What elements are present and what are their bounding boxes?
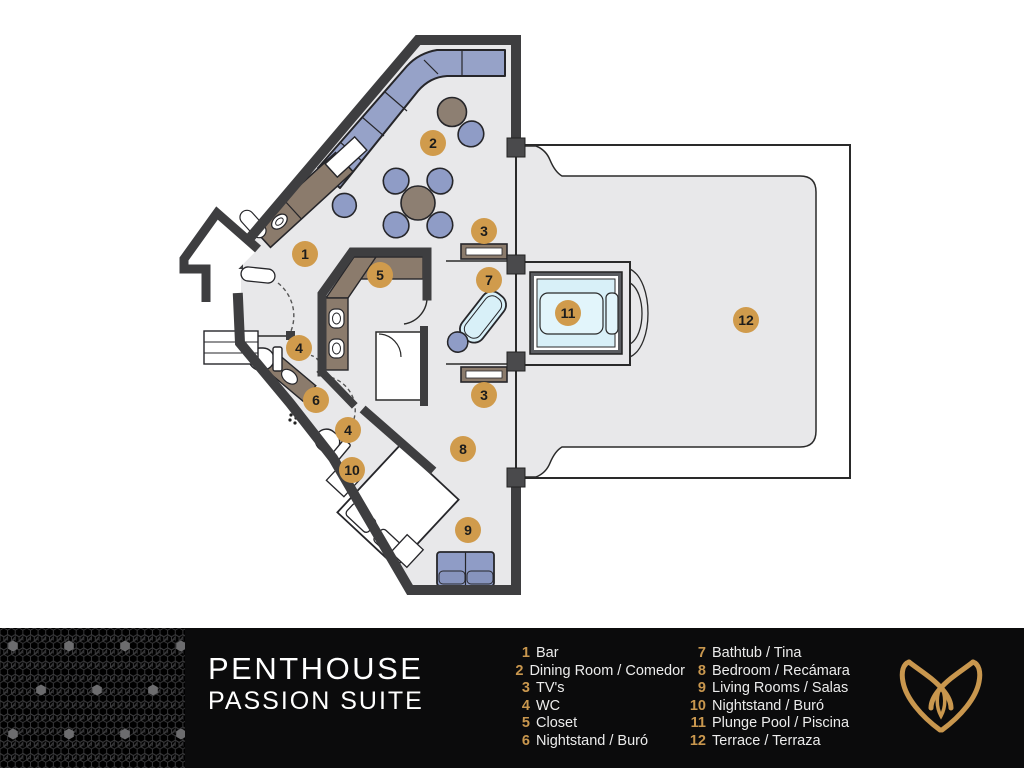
svg-text:3: 3 <box>480 223 488 239</box>
brand-logo <box>893 648 989 750</box>
svg-text:9: 9 <box>464 522 472 538</box>
svg-text:6: 6 <box>312 392 320 408</box>
tv-console-bottom <box>461 367 507 382</box>
legend-item-label: WC <box>536 698 560 716</box>
legend-item-number: 8 <box>681 663 706 681</box>
tv-console-top <box>461 244 507 259</box>
legend-item: 7Bathtub / Tina <box>681 645 871 663</box>
svg-text:4: 4 <box>295 340 303 356</box>
suite-title-block: PENTHOUSE PASSION SUITE <box>208 652 424 716</box>
svg-text:2: 2 <box>429 135 437 151</box>
svg-text:5: 5 <box>376 267 384 283</box>
svg-text:4: 4 <box>344 422 352 438</box>
legend-item-label: Terrace / Terraza <box>712 733 821 751</box>
svg-text:11: 11 <box>561 305 576 321</box>
room-marker-8: 8 <box>450 436 476 462</box>
penthouse-floorplan-page: 12334456789101112 <box>0 0 1024 768</box>
hex-pattern <box>0 628 185 768</box>
plunge-pool <box>516 262 648 365</box>
legend-item-label: Bathtub / Tina <box>712 645 801 663</box>
legend-item-number: 11 <box>681 715 706 733</box>
page-title: PENTHOUSE <box>208 652 424 686</box>
legend-item-label: Living Rooms / Salas <box>712 680 848 698</box>
legend-item-number: 1 <box>505 645 530 663</box>
footer-bar: PENTHOUSE PASSION SUITE 1Bar2Dining Room… <box>0 628 1024 768</box>
legend-item-number: 9 <box>681 680 706 698</box>
legend-item: 11Plunge Pool / Piscina <box>681 715 871 733</box>
floorplan-canvas: 12334456789101112 <box>0 0 1024 628</box>
legend-item: 6Nightstand / Buró <box>505 733 685 751</box>
legend-column-2: 7Bathtub / Tina8Bedroom / Recámara9Livin… <box>681 645 871 751</box>
svg-text:1: 1 <box>301 246 309 262</box>
floorplan-svg: 12334456789101112 <box>0 0 1024 628</box>
legend-item-label: Nightstand / Buró <box>536 733 648 751</box>
legend-item-label: Plunge Pool / Piscina <box>712 715 849 733</box>
svg-text:7: 7 <box>485 272 493 288</box>
room-marker-4: 4 <box>286 335 312 361</box>
legend-item-number: 5 <box>505 715 530 733</box>
svg-text:8: 8 <box>459 441 467 457</box>
legend-item: 3TV's <box>505 680 685 698</box>
legend-item-label: Bar <box>536 645 559 663</box>
legend-item-number: 4 <box>505 698 530 716</box>
room-marker-1: 1 <box>292 241 318 267</box>
room-marker-9: 9 <box>455 517 481 543</box>
coffee-table <box>438 98 467 127</box>
room-marker-12: 12 <box>733 307 759 333</box>
legend-item: 8Bedroom / Recámara <box>681 663 871 681</box>
legend-item-label: TV's <box>536 680 565 698</box>
room-marker-10: 10 <box>339 457 365 483</box>
dining-table <box>401 186 435 220</box>
legend-item-number: 10 <box>681 698 706 716</box>
legend-item-number: 7 <box>681 645 706 663</box>
legend-item: 4WC <box>505 698 685 716</box>
entry-door <box>240 266 275 283</box>
room-marker-2: 2 <box>420 130 446 156</box>
svg-text:12: 12 <box>738 312 754 328</box>
legend-item: 1Bar <box>505 645 685 663</box>
room-marker-3: 3 <box>471 382 497 408</box>
legend-column-1: 1Bar2Dining Room / Comedor3TV's4WC5Close… <box>505 645 685 751</box>
room-marker-6: 6 <box>303 387 329 413</box>
legend-item: 2Dining Room / Comedor <box>505 663 685 681</box>
svg-text:10: 10 <box>344 462 360 478</box>
legend-item: 9Living Rooms / Salas <box>681 680 871 698</box>
legend-item-label: Nightstand / Buró <box>712 698 824 716</box>
legend-item: 12Terrace / Terraza <box>681 733 871 751</box>
legend-item-number: 2 <box>505 663 523 681</box>
antler-logo-icon <box>893 648 989 750</box>
room-marker-5: 5 <box>367 262 393 288</box>
legend-item-number: 6 <box>505 733 530 751</box>
room-marker-11: 11 <box>555 300 581 326</box>
legend-item-number: 12 <box>681 733 706 751</box>
loveseat-sofa <box>437 552 494 586</box>
room-marker-7: 7 <box>476 267 502 293</box>
legend-item: 10Nightstand / Buró <box>681 698 871 716</box>
shower-room <box>376 332 424 400</box>
legend-item-label: Bedroom / Recámara <box>712 663 850 681</box>
svg-text:3: 3 <box>480 387 488 403</box>
legend-item: 5Closet <box>505 715 685 733</box>
legend-item-label: Closet <box>536 715 577 733</box>
closet-sink <box>329 309 344 328</box>
room-marker-4: 4 <box>335 417 361 443</box>
legend-item-number: 3 <box>505 680 530 698</box>
page-subtitle: PASSION SUITE <box>208 686 424 716</box>
closet-sink <box>329 339 344 358</box>
legend-item-label: Dining Room / Comedor <box>529 663 685 681</box>
room-marker-3: 3 <box>471 218 497 244</box>
